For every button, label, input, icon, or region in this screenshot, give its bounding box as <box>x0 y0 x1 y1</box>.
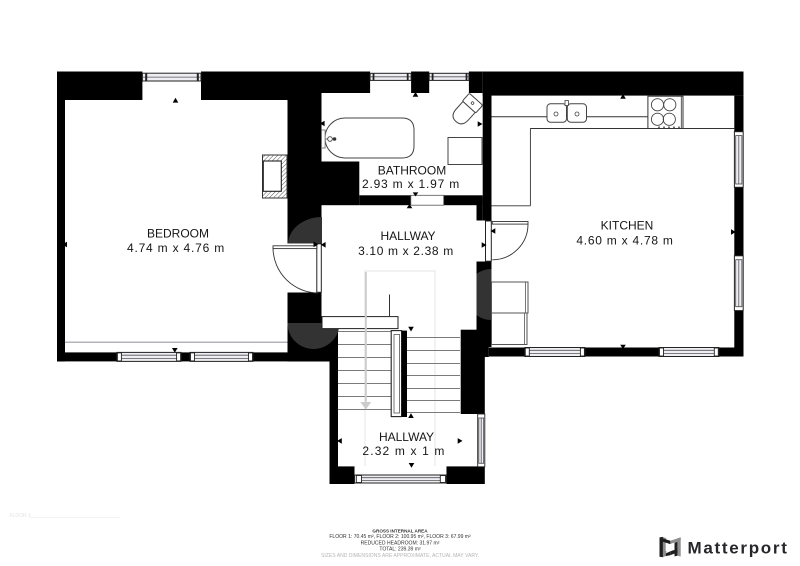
svg-text:FLOOR 1: FLOOR 1 <box>10 513 32 519</box>
svg-text:HALLWAY: HALLWAY <box>380 229 435 243</box>
svg-text:REDUCED HEADROOM: 31.97 m²: REDUCED HEADROOM: 31.97 m² <box>361 540 440 546</box>
svg-text:FLOOR 1: 70.45 m², FLOOR 2: 10: FLOOR 1: 70.45 m², FLOOR 2: 100.95 m², F… <box>329 534 471 540</box>
svg-text:3.10 m x 2.38 m: 3.10 m x 2.38 m <box>358 244 454 258</box>
svg-text:4.60 m x 4.78 m: 4.60 m x 4.78 m <box>576 233 673 247</box>
svg-text:2.32 m x 1 m: 2.32 m x 1 m <box>362 444 445 458</box>
svg-text:2.93 m x 1.97 m: 2.93 m x 1.97 m <box>362 177 460 191</box>
svg-text:GROSS INTERNAL AREA: GROSS INTERNAL AREA <box>372 529 428 534</box>
svg-text:HALLWAY: HALLWAY <box>379 430 434 444</box>
svg-text:BATHROOM: BATHROOM <box>378 163 446 177</box>
svg-text:KITCHEN: KITCHEN <box>601 218 654 232</box>
svg-text:TOTAL: 239.39 m²: TOTAL: 239.39 m² <box>379 547 421 553</box>
svg-text:4.74 m x 4.76 m: 4.74 m x 4.76 m <box>127 241 225 255</box>
svg-text:BEDROOM: BEDROOM <box>147 227 209 241</box>
svg-text:Matterport: Matterport <box>688 539 789 558</box>
svg-text:SIZES AND DIMENSIONS ARE APPRO: SIZES AND DIMENSIONS ARE APPROXIMATE, AC… <box>321 553 479 559</box>
